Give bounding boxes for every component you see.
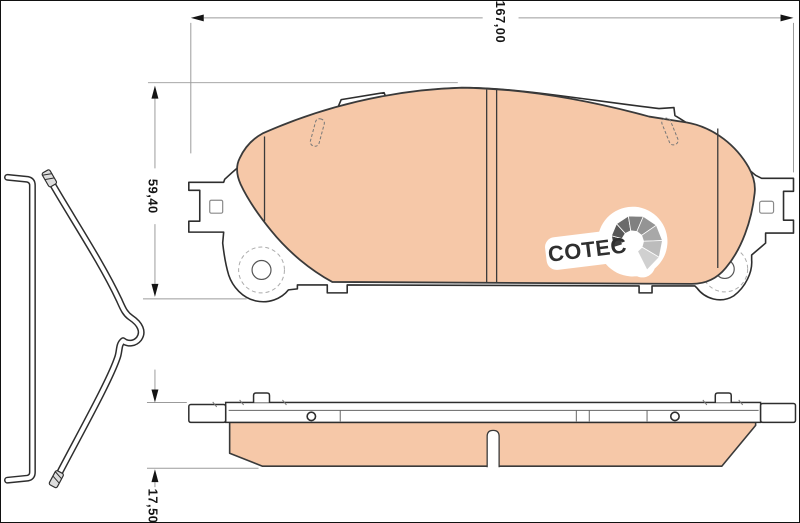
anti-rattle-spring	[41, 169, 141, 488]
side-view	[189, 393, 796, 467]
arrow-up-icon	[151, 86, 158, 99]
side-left-hole	[307, 412, 315, 420]
drawing-svg: 167,00 59,40 17,50	[1, 1, 799, 522]
height-dimension-label: 59,40	[145, 179, 160, 214]
arrow-left-icon	[191, 14, 204, 21]
thickness-dimension-label: 17,50	[145, 489, 160, 522]
left-lug-hole	[252, 261, 271, 280]
arrow-down-icon	[151, 284, 158, 297]
arrow-up-icon	[151, 469, 158, 482]
side-right-tab	[715, 393, 731, 402]
front-view: COTEC	[189, 88, 794, 302]
spring-wire-core	[51, 182, 141, 475]
side-wear-groove	[487, 430, 499, 467]
arrow-down-icon	[151, 390, 158, 403]
brake-pad-technical-drawing: 167,00 59,40 17,50	[0, 0, 800, 523]
side-backing-plate	[226, 402, 761, 422]
retaining-pin	[8, 177, 33, 480]
pin-wire-outline	[8, 177, 33, 480]
side-right-hole	[671, 412, 679, 420]
width-dimension-label: 167,00	[493, 1, 508, 43]
arrow-right-icon	[781, 14, 794, 21]
spring-tip-bottom	[49, 470, 64, 488]
side-left-ear	[189, 404, 226, 422]
side-left-tab	[254, 393, 270, 402]
side-right-ear	[761, 403, 796, 422]
pin-wire-core	[8, 177, 33, 480]
spring-wire-outline	[51, 182, 141, 475]
spring-tip-top	[41, 169, 57, 187]
